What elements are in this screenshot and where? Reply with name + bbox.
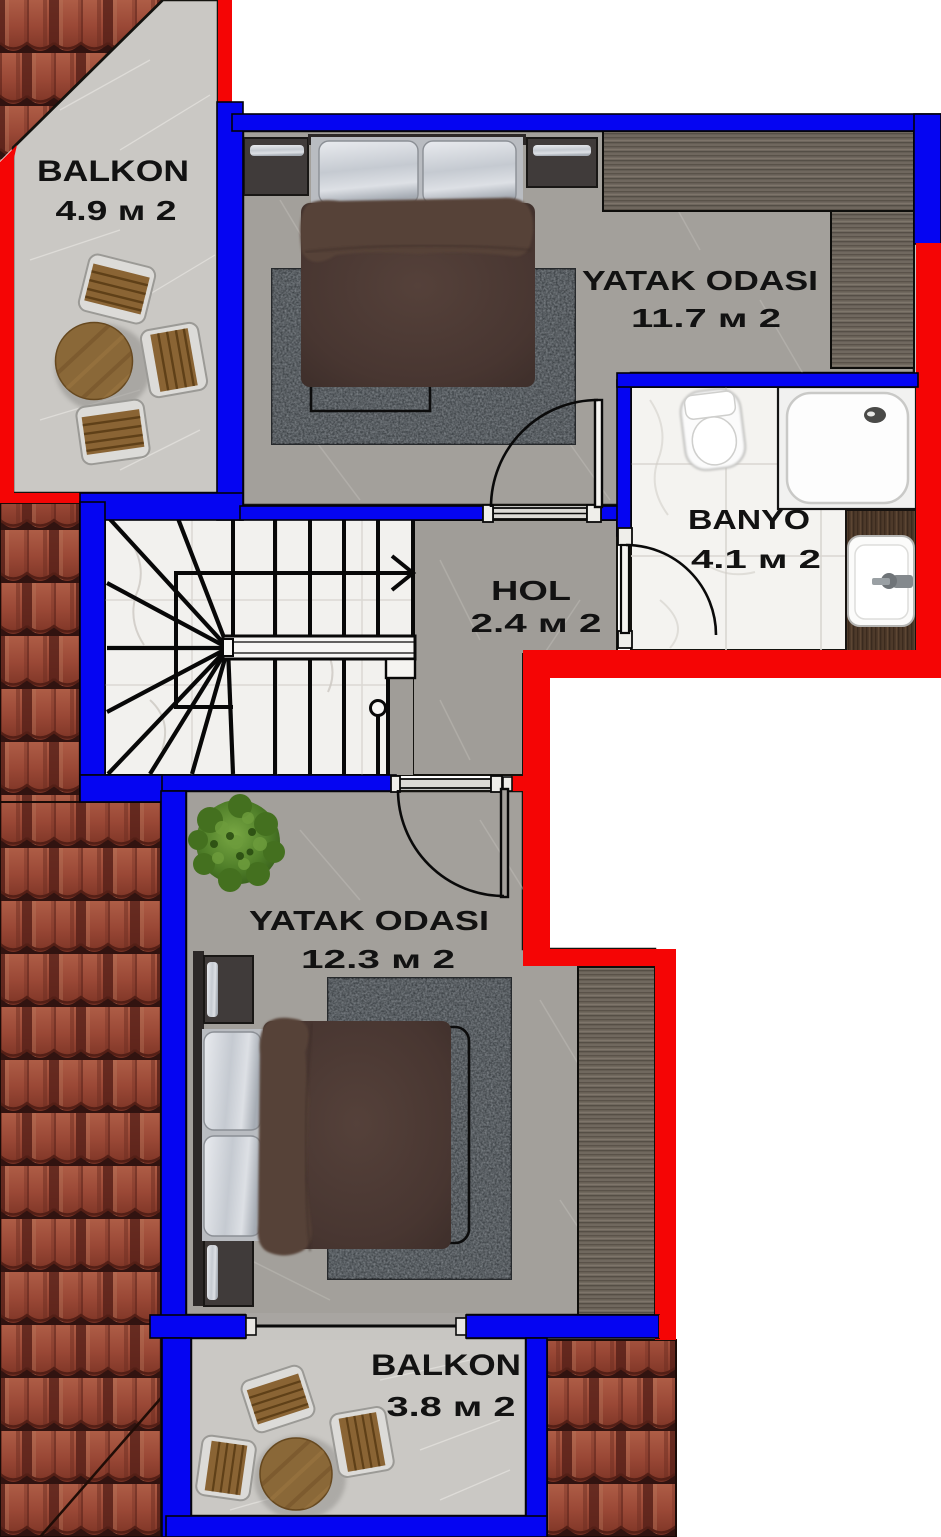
svg-text:YATAK ODASI: YATAK ODASI [249, 905, 489, 936]
svg-text:4.9 м 2: 4.9 м 2 [56, 195, 177, 226]
svg-text:4.1 м 2: 4.1 м 2 [691, 544, 821, 574]
svg-text:12.3 м 2: 12.3 м 2 [301, 944, 455, 974]
svg-text:3.8 м 2: 3.8 м 2 [387, 1391, 516, 1422]
svg-text:YATAK ODASI: YATAK ODASI [582, 265, 818, 296]
svg-text:11.7 м 2: 11.7 м 2 [631, 303, 781, 333]
svg-text:BALKON: BALKON [37, 155, 189, 188]
svg-text:HOL: HOL [491, 575, 571, 606]
svg-text:BALKON: BALKON [371, 1349, 521, 1382]
svg-text:2.4 м 2: 2.4 м 2 [471, 608, 602, 638]
svg-text:BANYO: BANYO [688, 504, 810, 535]
